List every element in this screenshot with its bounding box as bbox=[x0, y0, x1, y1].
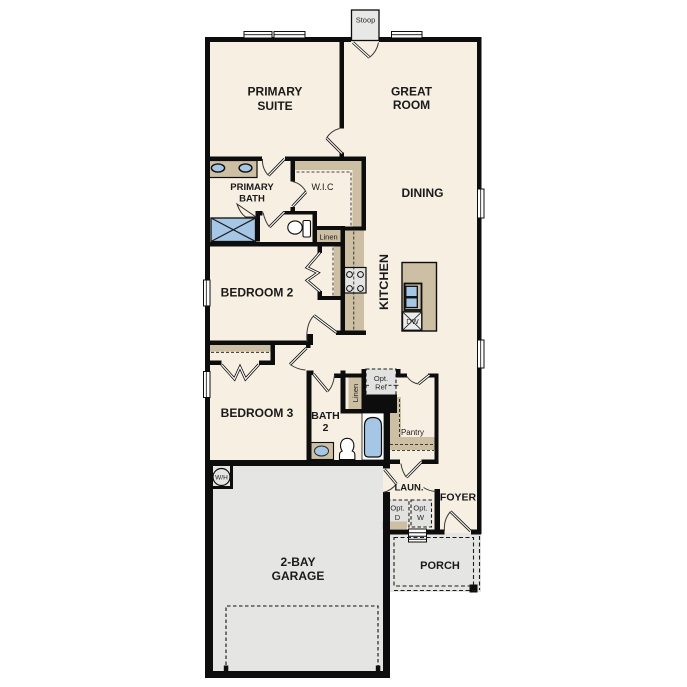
svg-text:BEDROOM 2: BEDROOM 2 bbox=[221, 286, 294, 300]
svg-text:Ref: Ref bbox=[375, 383, 388, 392]
svg-text:W.I.C: W.I.C bbox=[312, 182, 334, 192]
svg-text:PRIMARY: PRIMARY bbox=[230, 182, 274, 193]
svg-text:GARAGE: GARAGE bbox=[272, 569, 325, 583]
svg-text:Stoop: Stoop bbox=[356, 16, 376, 25]
svg-text:PORCH: PORCH bbox=[420, 560, 460, 572]
svg-text:2-BAY: 2-BAY bbox=[281, 555, 316, 569]
svg-text:Linen: Linen bbox=[319, 233, 337, 242]
svg-text:D: D bbox=[395, 513, 401, 522]
svg-text:BATH: BATH bbox=[311, 410, 339, 422]
svg-text:GREAT: GREAT bbox=[391, 84, 433, 98]
svg-text:Opt.: Opt. bbox=[413, 504, 427, 513]
svg-text:Opt.: Opt. bbox=[390, 504, 404, 513]
svg-text:Linen: Linen bbox=[351, 384, 360, 402]
svg-text:BEDROOM 3: BEDROOM 3 bbox=[221, 406, 294, 420]
svg-text:W/H: W/H bbox=[215, 475, 228, 482]
svg-text:2: 2 bbox=[323, 422, 329, 434]
svg-text:SUITE: SUITE bbox=[257, 99, 292, 113]
svg-text:DW: DW bbox=[406, 317, 419, 326]
svg-text:FOYER: FOYER bbox=[440, 492, 477, 504]
svg-text:LAUN.: LAUN. bbox=[394, 483, 423, 494]
svg-text:ROOM: ROOM bbox=[393, 98, 430, 112]
svg-text:BATH: BATH bbox=[239, 194, 265, 205]
svg-text:Pantry: Pantry bbox=[401, 428, 424, 437]
svg-text:PRIMARY: PRIMARY bbox=[248, 85, 303, 99]
svg-text:DINING: DINING bbox=[402, 186, 444, 200]
svg-text:KITCHEN: KITCHEN bbox=[377, 254, 391, 310]
svg-text:W: W bbox=[417, 513, 425, 522]
